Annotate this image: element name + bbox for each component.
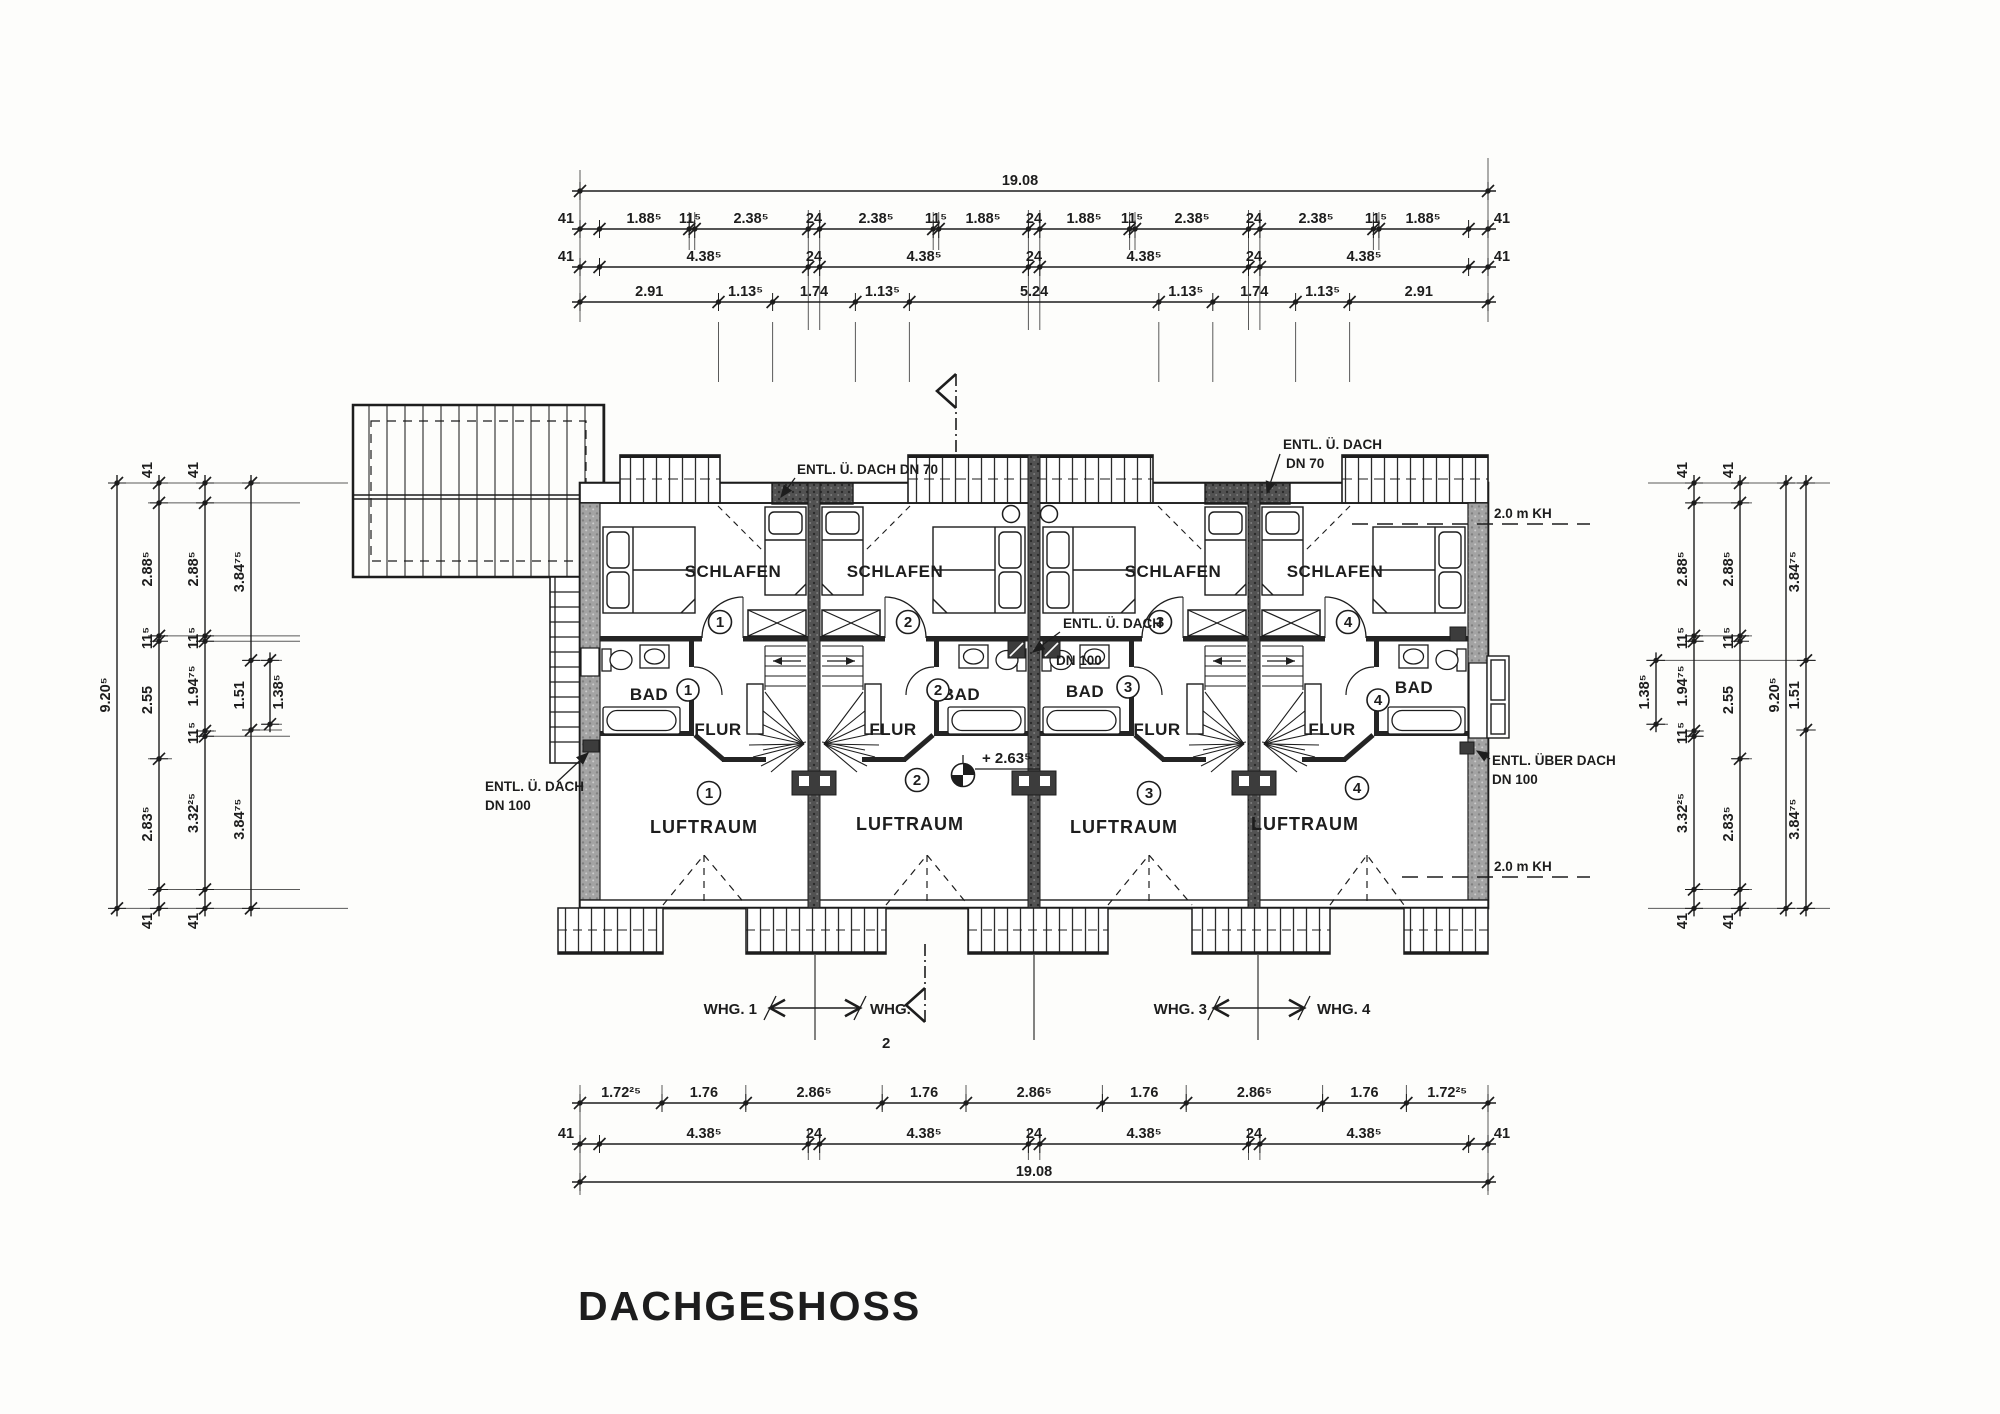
dim-label: 1.13⁵: [865, 284, 900, 300]
dim-label: 4.38⁵: [1346, 249, 1381, 265]
dim-label: 2.91: [635, 284, 663, 300]
dim-label: 24: [1026, 211, 1042, 227]
annotation-level: + 2.63⁵: [982, 750, 1031, 767]
dim-label: 19.08: [1016, 1164, 1052, 1180]
party-wall: [808, 483, 820, 908]
dim-label: 1.88⁵: [965, 211, 1000, 227]
dim-label: 1.76: [910, 1085, 938, 1101]
unit-number: 1: [684, 682, 692, 699]
annotation-vent: ENTL. Ü. DACH: [1283, 437, 1382, 452]
pillow-icon: [607, 572, 629, 608]
dim-label: 24: [806, 211, 822, 227]
unit-number: 1: [705, 785, 713, 802]
bathtub-icon: [607, 711, 676, 731]
room-label-bad: BAD: [1395, 678, 1433, 697]
window-icon: [581, 648, 599, 676]
gable-wall-left: [580, 503, 600, 900]
exterior-shaft: [1487, 656, 1509, 738]
dim-label: 9.20⁵: [98, 677, 114, 712]
dim-label: 24: [806, 249, 822, 265]
dim-label: 4.38⁵: [906, 249, 941, 265]
room-label-flur: FLUR: [694, 720, 741, 739]
dim-label: 3.84⁷⁵: [1787, 799, 1803, 840]
dim-label: 4.38⁵: [906, 1126, 941, 1142]
party-wall: [1028, 455, 1040, 908]
dim-label: 11⁵: [186, 722, 202, 744]
dim-label: 4.38⁵: [686, 249, 721, 265]
room-label-luftraum: LUFTRAUM: [650, 817, 758, 837]
dim-label: 24: [1026, 1126, 1042, 1142]
apartment-label: WHG.: [870, 1001, 911, 1018]
floor-plan-sheet: SCHLAFEN SCHLAFEN SCHLAFEN SCHLAFEN BAD …: [0, 0, 2000, 1414]
annotation-vent: ENTL. Ü. DACH DN 70: [797, 462, 938, 477]
dim-label: 41: [1675, 462, 1691, 478]
annotation-vent: DN 100: [1056, 653, 1102, 668]
dim-label: 2.88⁵: [1675, 551, 1691, 586]
dim-label: 1.13⁵: [728, 284, 763, 300]
dim-label: 1.94⁷⁵: [186, 665, 202, 706]
dim-label: 3.84⁷⁵: [232, 551, 248, 592]
room-label-schlafen: SCHLAFEN: [1287, 562, 1384, 581]
unit-number: 2: [934, 682, 942, 699]
dim-label: 19.08: [1002, 173, 1038, 189]
annotation-knee-height: 2.0 m KH: [1494, 859, 1552, 874]
dim-label: 11⁵: [186, 627, 202, 649]
dim-label: 24: [806, 1126, 822, 1142]
dim-label: 11⁵: [1121, 211, 1143, 227]
dim-label: 2.88⁵: [140, 551, 156, 586]
dim-label: 4.38⁵: [1126, 1126, 1161, 1142]
unit-number: 1: [716, 614, 724, 631]
dim-label: 24: [1246, 1126, 1262, 1142]
apartment-arrow: [764, 955, 1310, 1040]
dim-label: 1.13⁵: [1168, 284, 1203, 300]
dim-label: 1.88⁵: [1405, 211, 1440, 227]
dim-label: 2.38⁵: [858, 211, 893, 227]
dim-label: 2.38⁵: [1174, 211, 1209, 227]
dim-label: 1.38⁵: [1637, 674, 1653, 709]
room-label-flur: FLUR: [1308, 720, 1355, 739]
dim-label: 24: [1026, 249, 1042, 265]
dim-label: 2.55: [140, 686, 156, 714]
dim-label: 41: [140, 913, 156, 929]
room-label-schlafen: SCHLAFEN: [685, 562, 782, 581]
dim-label: 2.83⁵: [140, 806, 156, 841]
vent-pipe-icon: [1041, 506, 1058, 523]
dim-label: 1.38⁵: [271, 674, 287, 709]
apartment-label: WHG. 3: [1154, 1001, 1207, 1018]
dim-label: 2.38⁵: [733, 211, 768, 227]
dim-label: 41: [140, 462, 156, 478]
dim-label: 3.84⁷⁵: [232, 799, 248, 840]
room-label-schlafen: SCHLAFEN: [847, 562, 944, 581]
dim-label: 1.76: [1130, 1085, 1158, 1101]
dim-label: 41: [558, 249, 574, 265]
dim-label: 11⁵: [1365, 211, 1387, 227]
dim-label: 3.32²⁵: [186, 793, 202, 833]
lower-roof-strip: [558, 908, 1488, 954]
dim-label: 4.38⁵: [686, 1126, 721, 1142]
room-label-bad: BAD: [1066, 682, 1104, 701]
dim-label: 41: [186, 913, 202, 929]
dim-label: 2.38⁵: [1298, 211, 1333, 227]
dim-label: 2.88⁵: [186, 551, 202, 586]
room-label-flur: FLUR: [1133, 720, 1180, 739]
annotation-knee-height: 2.0 m KH: [1494, 506, 1552, 521]
floor-plan-drawing: SCHLAFEN SCHLAFEN SCHLAFEN SCHLAFEN BAD …: [0, 0, 2000, 1414]
room-label-luftraum: LUFTRAUM: [1251, 814, 1359, 834]
dim-label: 1.51: [1787, 681, 1803, 709]
dim-label: 24: [1246, 211, 1262, 227]
dim-label: 2.88⁵: [1721, 551, 1737, 586]
party-wall: [1248, 483, 1260, 908]
dim-label: 3.84⁷⁵: [1787, 551, 1803, 592]
unit-number: 4: [1374, 692, 1383, 709]
dim-label: 41: [1675, 913, 1691, 929]
room-label-luftraum: LUFTRAUM: [1070, 817, 1178, 837]
apartment-label: 2: [882, 1035, 890, 1052]
dim-label: 1.94⁷⁵: [1675, 665, 1691, 706]
pillow-icon: [607, 532, 629, 568]
dim-label: 41: [1494, 1126, 1510, 1142]
dim-label: 11⁵: [1675, 627, 1691, 649]
pillow-icon: [769, 512, 802, 534]
dim-label: 2.86⁵: [1017, 1085, 1052, 1101]
dim-label: 1.51: [232, 681, 248, 709]
dim-label: 24: [1246, 249, 1262, 265]
room-label-flur: FLUR: [869, 720, 916, 739]
dim-label: 1.72²⁵: [1427, 1085, 1467, 1101]
vent-pipe-icon: [1003, 506, 1020, 523]
annotation-vent: DN 100: [485, 798, 531, 813]
dim-label: 41: [1721, 462, 1737, 478]
unit-number: 4: [1353, 780, 1362, 797]
room-label-bad: BAD: [630, 685, 668, 704]
annotation-vent: ENTL. ÜBER DACH: [1492, 753, 1616, 768]
dim-label: 2.83⁵: [1721, 806, 1737, 841]
annotation-vent: DN 100: [1492, 772, 1538, 787]
dim-label: 11⁵: [140, 627, 156, 649]
exterior-stair-icon: [550, 577, 580, 763]
apartment-label: WHG. 4: [1317, 1001, 1371, 1018]
dim-label: 2.91: [1405, 284, 1433, 300]
dim-label: 1.74: [800, 284, 828, 300]
page-title: DACHGESHOSS: [578, 1283, 921, 1329]
dim-label: 4.38⁵: [1126, 249, 1161, 265]
annotation-vent: DN 70: [1286, 456, 1324, 471]
dim-label: 1.74: [1240, 284, 1268, 300]
unit-number: 3: [1145, 785, 1153, 802]
dim-label: 41: [1494, 249, 1510, 265]
dim-label: 11⁵: [925, 211, 947, 227]
dim-label: 5.24: [1020, 284, 1048, 300]
unit-number: 4: [1344, 614, 1353, 631]
annotation-vent: ENTL. Ü. DACH: [485, 779, 584, 794]
dim-label: 2.86⁵: [796, 1085, 831, 1101]
dim-label: 41: [558, 1126, 574, 1142]
dim-label: 1.76: [1350, 1085, 1378, 1101]
washbasin-icon: [645, 649, 665, 664]
dim-label: 3.32²⁵: [1675, 793, 1691, 833]
unit-number: 2: [904, 614, 912, 631]
dim-label: 41: [1494, 211, 1510, 227]
window-icon: [1469, 663, 1487, 738]
dim-label: 1.88⁵: [1066, 211, 1101, 227]
dim-label: 2.55: [1721, 686, 1737, 714]
dim-label: 1.72²⁵: [601, 1085, 641, 1101]
dim-label: 9.20⁵: [1767, 677, 1783, 712]
dim-label: 4.38⁵: [1346, 1126, 1381, 1142]
roof-terrace: [353, 405, 604, 577]
unit-number: 2: [913, 772, 921, 789]
dim-label: 1.88⁵: [626, 211, 661, 227]
apartment-label: WHG. 1: [704, 1001, 757, 1018]
room-label-schlafen: SCHLAFEN: [1125, 562, 1222, 581]
dim-label: 1.13⁵: [1305, 284, 1340, 300]
annotation-vent: ENTL. Ü. DACH: [1063, 616, 1162, 631]
dim-label: 41: [558, 211, 574, 227]
dim-label: 41: [186, 462, 202, 478]
dim-label: 11⁵: [1721, 627, 1737, 649]
dim-label: 1.76: [690, 1085, 718, 1101]
dim-label: 41: [1721, 913, 1737, 929]
toilet-icon: [610, 651, 632, 670]
unit-number: 3: [1124, 679, 1132, 696]
room-label-luftraum: LUFTRAUM: [856, 814, 964, 834]
dim-label: 2.86⁵: [1237, 1085, 1272, 1101]
dim-label: 11⁵: [679, 211, 701, 227]
dim-label: 11⁵: [1675, 722, 1691, 744]
